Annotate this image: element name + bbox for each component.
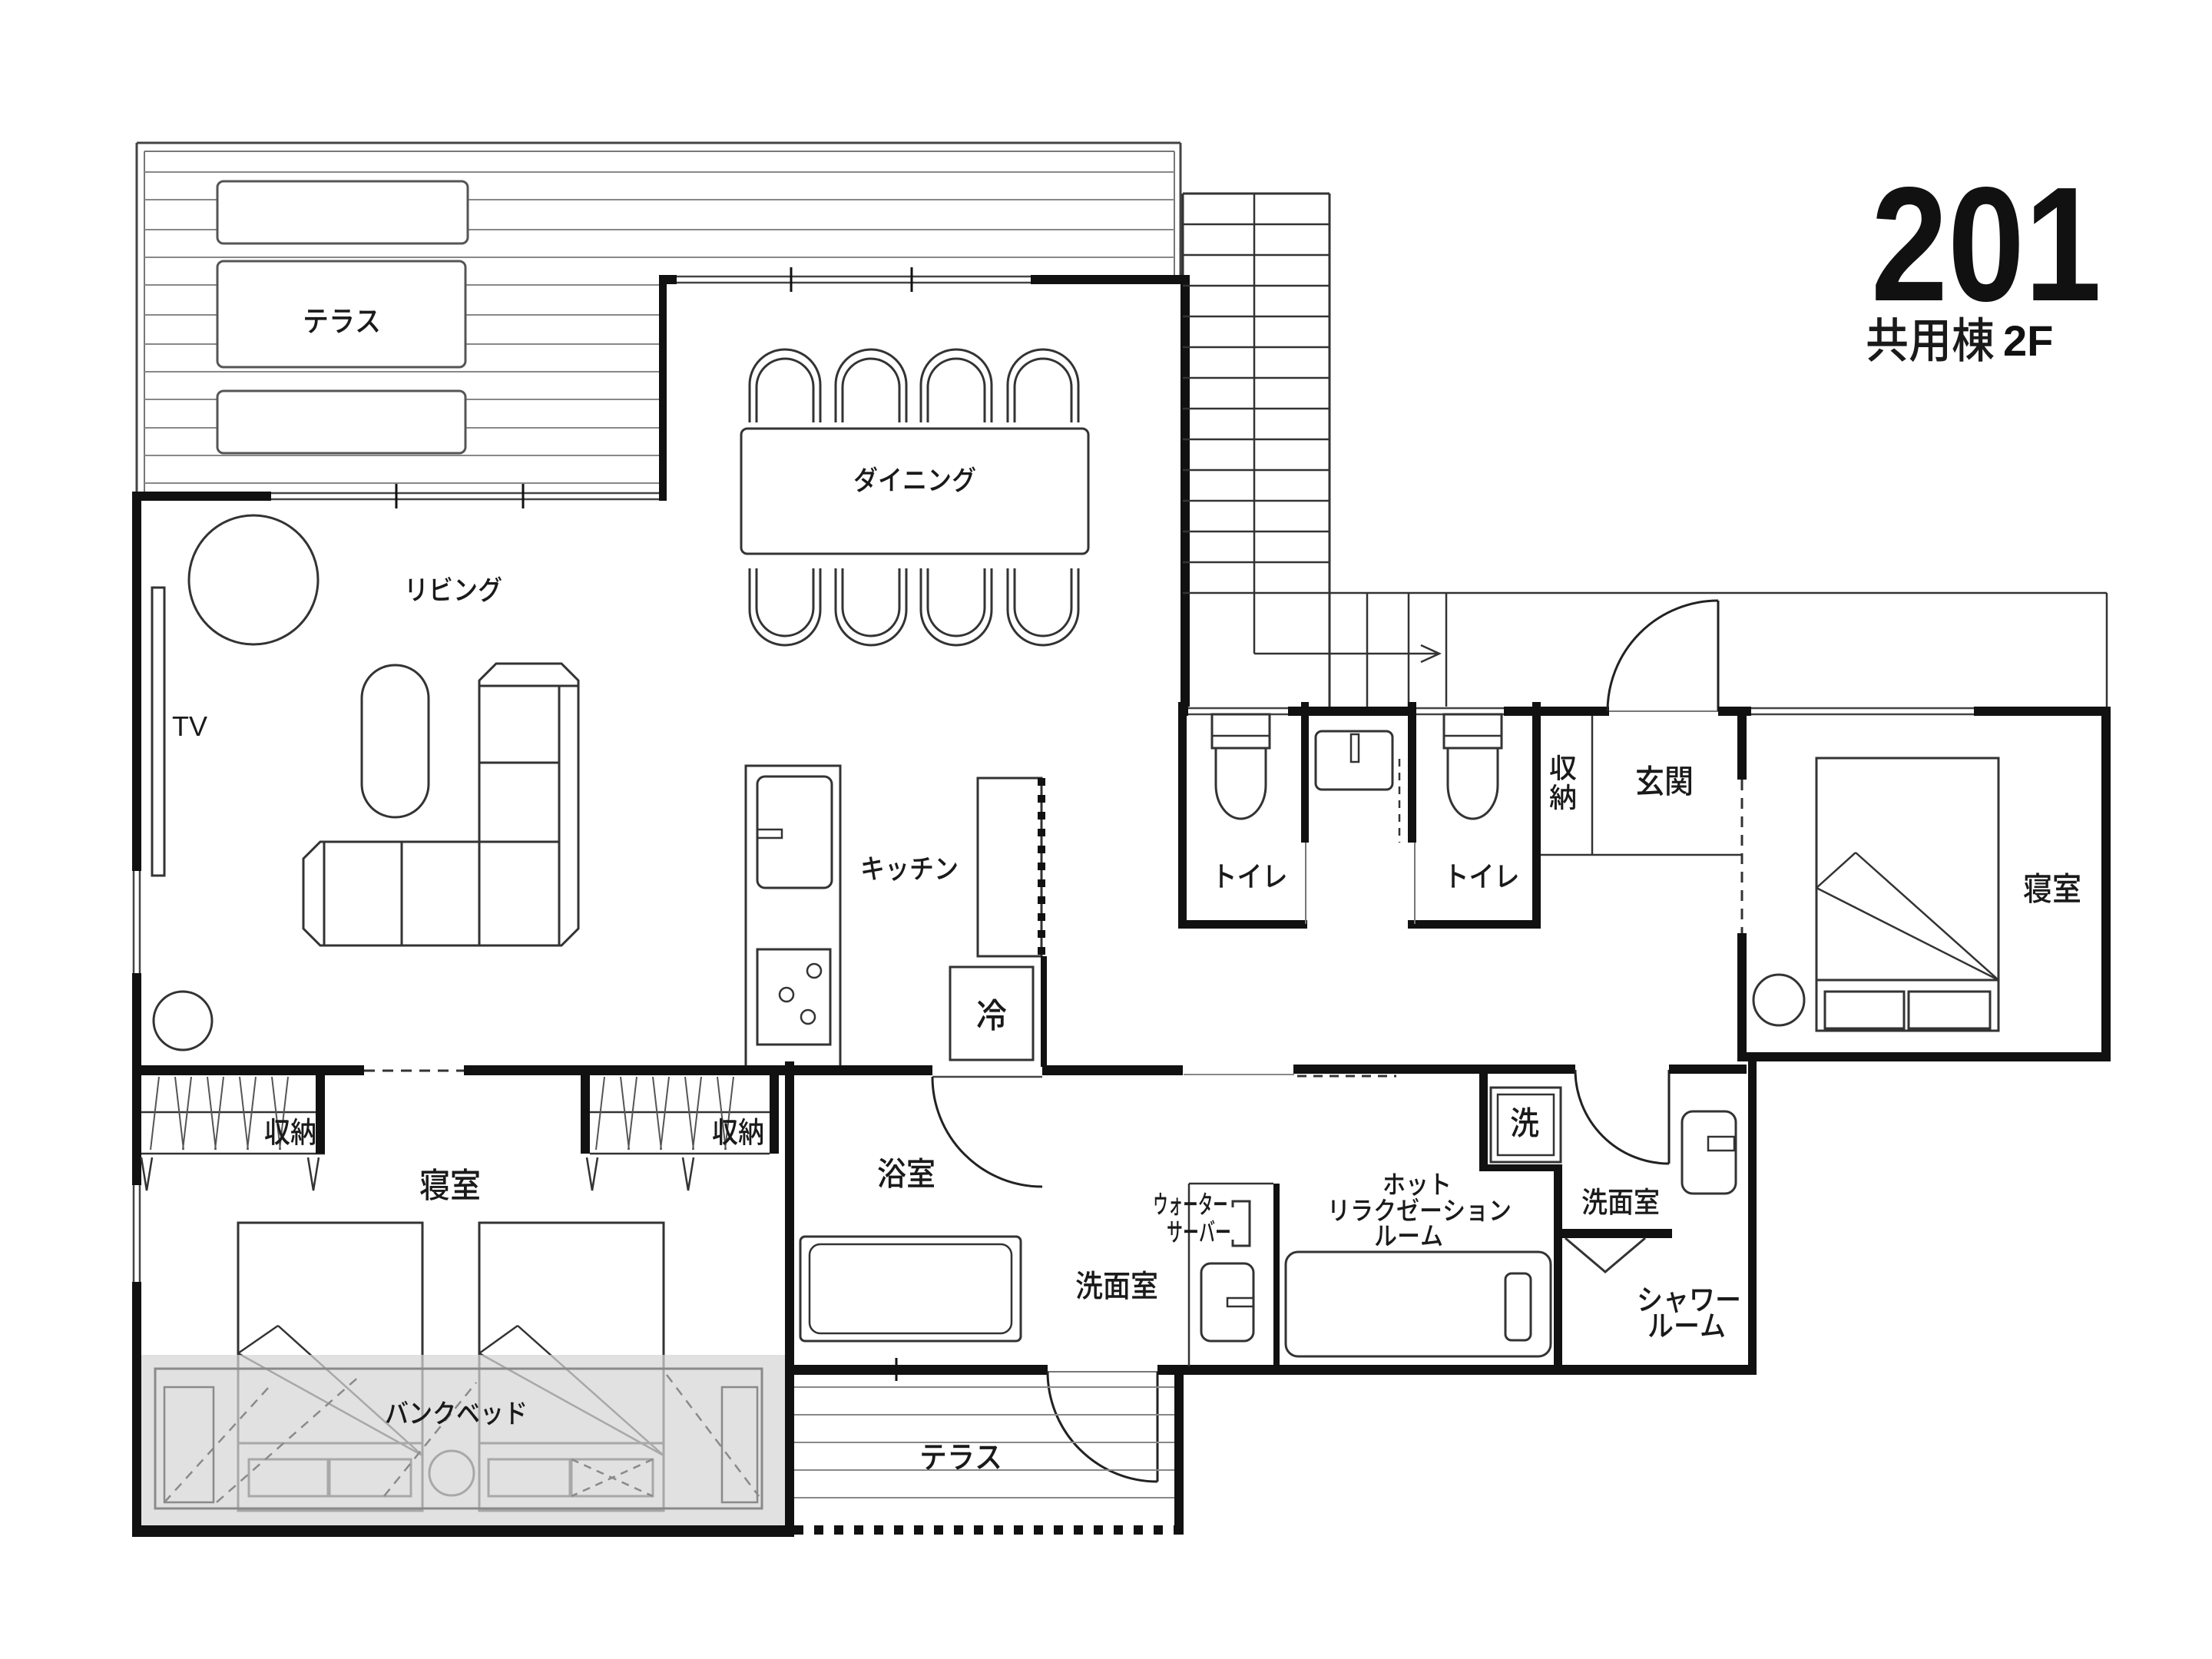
svg-text:TV: TV bbox=[172, 710, 207, 742]
svg-text:2F: 2F bbox=[2003, 316, 2053, 365]
svg-text:201: 201 bbox=[1871, 153, 2101, 335]
